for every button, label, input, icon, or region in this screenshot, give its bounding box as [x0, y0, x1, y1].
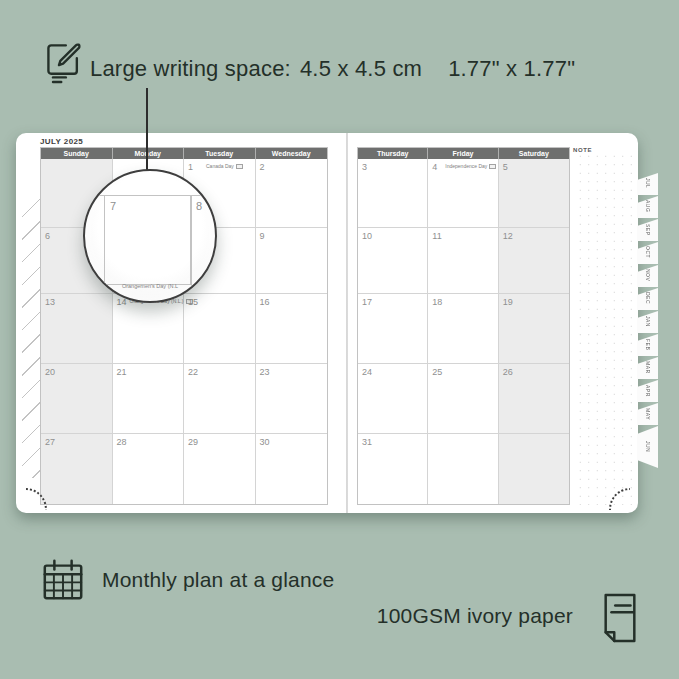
- day-header: Wednesday: [256, 148, 328, 159]
- product-graphic: Large writing space:4.5 x 4.5 cm1.77" x …: [0, 0, 679, 679]
- month-title: JULY 2025: [40, 137, 83, 146]
- paper-annotation: 100GSM ivory paper: [377, 604, 573, 628]
- writing-space-inch: 1.77" x 1.77": [448, 56, 575, 81]
- day-cell: 29: [184, 434, 256, 504]
- day-cell: 17: [358, 294, 428, 364]
- day-cell: 12: [499, 228, 569, 294]
- flag-icon: [236, 164, 243, 169]
- day-cell: 13: [41, 294, 113, 364]
- writing-space-cm: 4.5 x 4.5 cm: [300, 56, 422, 81]
- day-cell: [499, 434, 569, 504]
- note-label: NOTE: [573, 147, 633, 153]
- day-cell: 16: [256, 294, 328, 364]
- day-header: Monday: [113, 148, 185, 159]
- tab-aug: AUG: [637, 195, 658, 218]
- tab-may: MAY: [637, 402, 658, 425]
- day-header: Friday: [428, 148, 498, 159]
- day-header: Tuesday: [184, 148, 256, 159]
- tab-jun: JUN: [637, 425, 658, 469]
- monthly-plan-annotation: Monthly plan at a glance: [102, 568, 334, 592]
- tab-sep: SEP: [637, 218, 658, 241]
- day-cell: 27: [41, 434, 113, 504]
- day-cell: 25: [428, 364, 498, 434]
- day-cell: 26: [499, 364, 569, 434]
- tab-feb: FEB: [637, 333, 658, 356]
- day-cell: 9: [256, 228, 328, 294]
- day-header: Sunday: [41, 148, 113, 159]
- book-spine: [346, 133, 348, 513]
- day-cell: 21: [113, 364, 185, 434]
- day-cell: 4 Independence Day: [428, 159, 498, 228]
- day-cell: 20: [41, 364, 113, 434]
- day-cell: 19: [499, 294, 569, 364]
- magnified-date: 8: [196, 200, 202, 212]
- tab-jul: JUL: [637, 172, 658, 195]
- tab-oct: OCT: [637, 241, 658, 264]
- magnified-day-cell: [104, 195, 191, 285]
- day-cell: 3: [358, 159, 428, 228]
- magnified-date: 7: [110, 200, 116, 212]
- corner-perforation-left: [26, 488, 48, 510]
- note-column: NOTE: [573, 147, 633, 505]
- day-cell: 22: [184, 364, 256, 434]
- day-cell: 15: [184, 294, 256, 364]
- day-cell: 30: [256, 434, 328, 504]
- holiday-label: Canada Day: [206, 163, 243, 169]
- day-header: Saturday: [499, 148, 569, 159]
- tab-apr: APR: [637, 379, 658, 402]
- day-cell: [428, 434, 498, 504]
- corner-perforation-right: [608, 488, 630, 510]
- tab-mar: MAR: [637, 356, 658, 379]
- day-cell: 23: [256, 364, 328, 434]
- magnifier-circle: 7 8 Orangemen's Day (N.L: [83, 169, 217, 303]
- day-cell: 31: [358, 434, 428, 504]
- calendar-grid-icon: [40, 557, 86, 603]
- day-cell: 11: [428, 228, 498, 294]
- writing-space-label: Large writing space:: [90, 56, 291, 81]
- tab-nov: NOV: [637, 264, 658, 287]
- day-cell: 5: [499, 159, 569, 228]
- dot-grid: [573, 149, 633, 505]
- pencil-note-icon: [42, 34, 86, 86]
- paper-sheet-icon: [599, 591, 641, 645]
- writing-space-annotation: Large writing space:4.5 x 4.5 cm1.77" x …: [90, 56, 575, 82]
- holiday-label: Independence Day: [445, 163, 496, 169]
- day-cell: 28: [113, 434, 185, 504]
- calendar-right-page: Thursday Friday Saturday 3 4 Independenc…: [357, 147, 570, 505]
- day-cell: 2: [256, 159, 328, 228]
- tab-jan: JAN: [637, 310, 658, 333]
- day-cell: 10: [358, 228, 428, 294]
- day-cell: 14 Orangemen's Day (N.L.): [113, 294, 185, 364]
- callout-line: [146, 88, 148, 172]
- month-tabs: JUL AUG SEP OCT NOV DEC JAN FEB MAR APR …: [637, 172, 658, 469]
- day-cell: 18: [428, 294, 498, 364]
- tab-dec: DEC: [637, 287, 658, 310]
- day-cell: 24: [358, 364, 428, 434]
- flag-icon: [489, 164, 496, 169]
- day-header: Thursday: [358, 148, 428, 159]
